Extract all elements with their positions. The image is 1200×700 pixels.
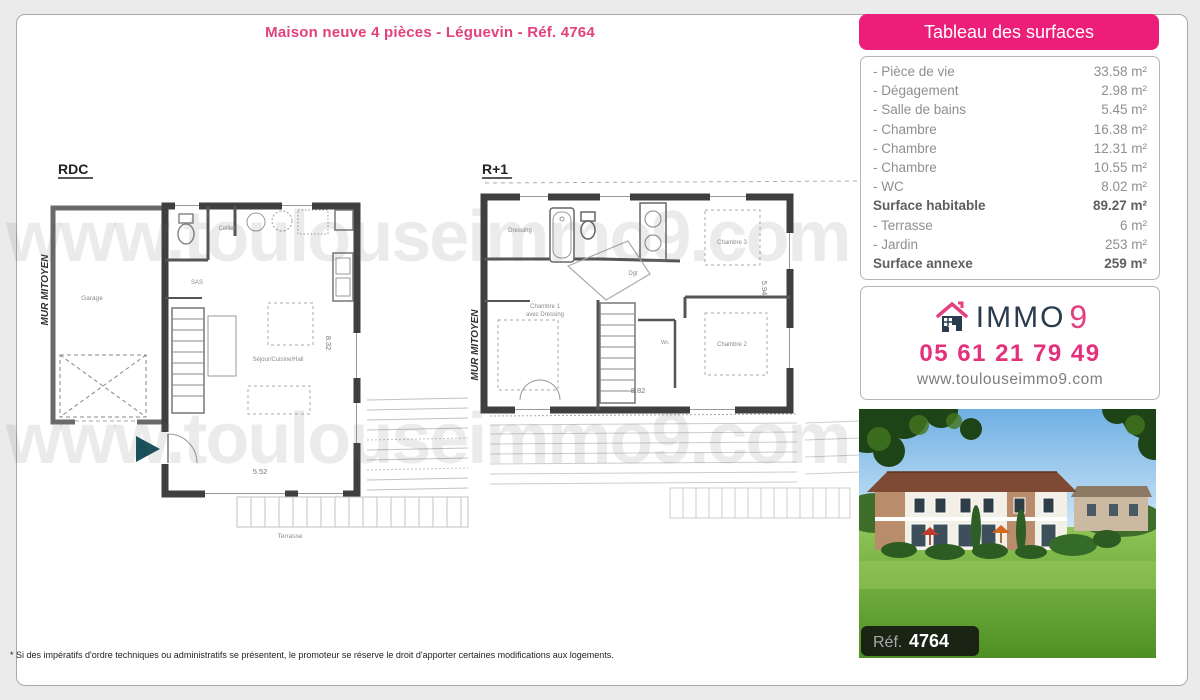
- house-logo-icon: [932, 300, 972, 336]
- surface-row-value: 5.45 m²: [1101, 100, 1147, 119]
- r1-dashed-line: [485, 181, 860, 183]
- r1-bedroom2-label: Chambre 2: [717, 342, 747, 348]
- page-title: Maison neuve 4 pièces - Léguevin - Réf. …: [0, 24, 860, 41]
- rdc-dim-height: 8.32: [324, 336, 333, 351]
- surface-row: - WC8.02 m²: [873, 177, 1147, 196]
- surface-row-label: - WC: [873, 177, 904, 196]
- surface-row-value: 16.38 m²: [1094, 120, 1147, 139]
- surface-row: - Chambre10.55 m²: [873, 158, 1147, 177]
- r1-room-labels: Dressing Chambre 3 Dgt Chambre 1 avec Dr…: [508, 228, 769, 395]
- r1-dim-width: 8.82: [631, 386, 646, 395]
- surface-row: - Jardin253 m²: [873, 235, 1147, 254]
- ref-badge-value: 4764: [909, 631, 949, 651]
- surface-row-total-habitable: Surface habitable89.27 m²: [873, 196, 1147, 215]
- agency-contact-card: IMMO 9 05 61 21 79 49 www.toulouseimmo9.…: [860, 286, 1160, 400]
- property-photo: Réf. 4764: [859, 409, 1156, 658]
- rdc-sas-label: SAS: [191, 280, 203, 286]
- surface-row-label: - Chambre: [873, 120, 937, 139]
- entrance-arrow-icon: [136, 436, 160, 462]
- phone-number: 05 61 21 79 49: [861, 340, 1159, 368]
- surface-row-label: - Salle de bains: [873, 100, 966, 119]
- surface-row-value: 89.27 m²: [1093, 196, 1147, 215]
- surfaces-panel-header: Tableau des surfaces: [859, 14, 1159, 50]
- rdc-garage-label: Garage: [81, 295, 103, 302]
- r1-wc-label: Wc: [661, 340, 669, 346]
- website-url: www.toulouseimmo9.com: [861, 371, 1159, 389]
- surface-row-value: 33.58 m²: [1094, 62, 1147, 81]
- ref-badge-label: Réf.: [873, 634, 902, 651]
- surface-row-value: 6 m²: [1120, 216, 1147, 235]
- surface-row: - Dégagement2.98 m²: [873, 81, 1147, 100]
- surface-row-value: 253 m²: [1105, 235, 1147, 254]
- surface-row: - Terrasse6 m²: [873, 216, 1147, 235]
- rdc-party-wall-label: MUR MITOYEN: [40, 254, 51, 326]
- r1-bedroom3-label: Chambre 3: [717, 240, 747, 246]
- floorplan-r1: R+1 MUR MITOYEN: [460, 148, 880, 548]
- surface-row: - Chambre16.38 m²: [873, 120, 1147, 139]
- surface-row-value: 2.98 m²: [1101, 81, 1147, 100]
- r1-hall-label: Dgt: [628, 271, 638, 277]
- surface-row-label: Surface annexe: [873, 254, 973, 273]
- surface-row-label: - Dégagement: [873, 81, 959, 100]
- surface-row-label: - Chambre: [873, 158, 937, 177]
- floorplan-rdc: RDC MUR MITOYEN: [30, 148, 470, 548]
- surface-row-label: - Jardin: [873, 235, 918, 254]
- brand-wordmark: IMMO: [976, 301, 1066, 335]
- rdc-label: RDC: [58, 161, 88, 177]
- r1-fixtures: [498, 203, 767, 403]
- surface-row-value: 8.02 m²: [1101, 177, 1147, 196]
- r1-dim-height: 5.94: [760, 281, 769, 296]
- r1-roof-hatch: [490, 414, 860, 518]
- rdc-dim-width: 5.52: [253, 467, 268, 476]
- surface-row-label: - Terrasse: [873, 216, 933, 235]
- surface-row-label: Surface habitable: [873, 196, 986, 215]
- surface-row-total-annexe: Surface annexe259 m²: [873, 254, 1147, 273]
- rdc-walls: [53, 201, 361, 498]
- surface-row-value: 12.31 m²: [1094, 139, 1147, 158]
- r1-label: R+1: [482, 161, 508, 177]
- surface-row: - Salle de bains5.45 m²: [873, 100, 1147, 119]
- surface-row-value: 10.55 m²: [1094, 158, 1147, 177]
- surfaces-table: - Pièce de vie33.58 m² - Dégagement2.98 …: [860, 56, 1160, 280]
- agency-logo: IMMO 9: [861, 299, 1159, 336]
- rdc-terrace-label: Terrasse: [278, 533, 303, 540]
- r1-bedroom1-label-1: Chambre 1: [530, 304, 560, 310]
- surface-row-label: - Chambre: [873, 139, 937, 158]
- r1-party-wall-label: MUR MITOYEN: [470, 309, 481, 381]
- brand-digit: 9: [1069, 299, 1088, 336]
- rdc-living-label: Séjour/Cuisine/Hall: [252, 357, 303, 363]
- surface-row-label: - Pièce de vie: [873, 62, 955, 81]
- r1-walls: [484, 192, 794, 414]
- surface-row: - Pièce de vie33.58 m²: [873, 62, 1147, 81]
- rdc-cellier-label: Cellier: [218, 226, 235, 232]
- surface-row: - Chambre12.31 m²: [873, 139, 1147, 158]
- flyer-page: Maison neuve 4 pièces - Léguevin - Réf. …: [0, 0, 1200, 700]
- r1-bedroom1-label-2: avec Dressing: [526, 312, 564, 318]
- footnote-text: * Si des impératifs d'ordre techniques o…: [10, 650, 910, 660]
- r1-dressing-label: Dressing: [508, 228, 532, 234]
- surface-row-value: 259 m²: [1104, 254, 1147, 273]
